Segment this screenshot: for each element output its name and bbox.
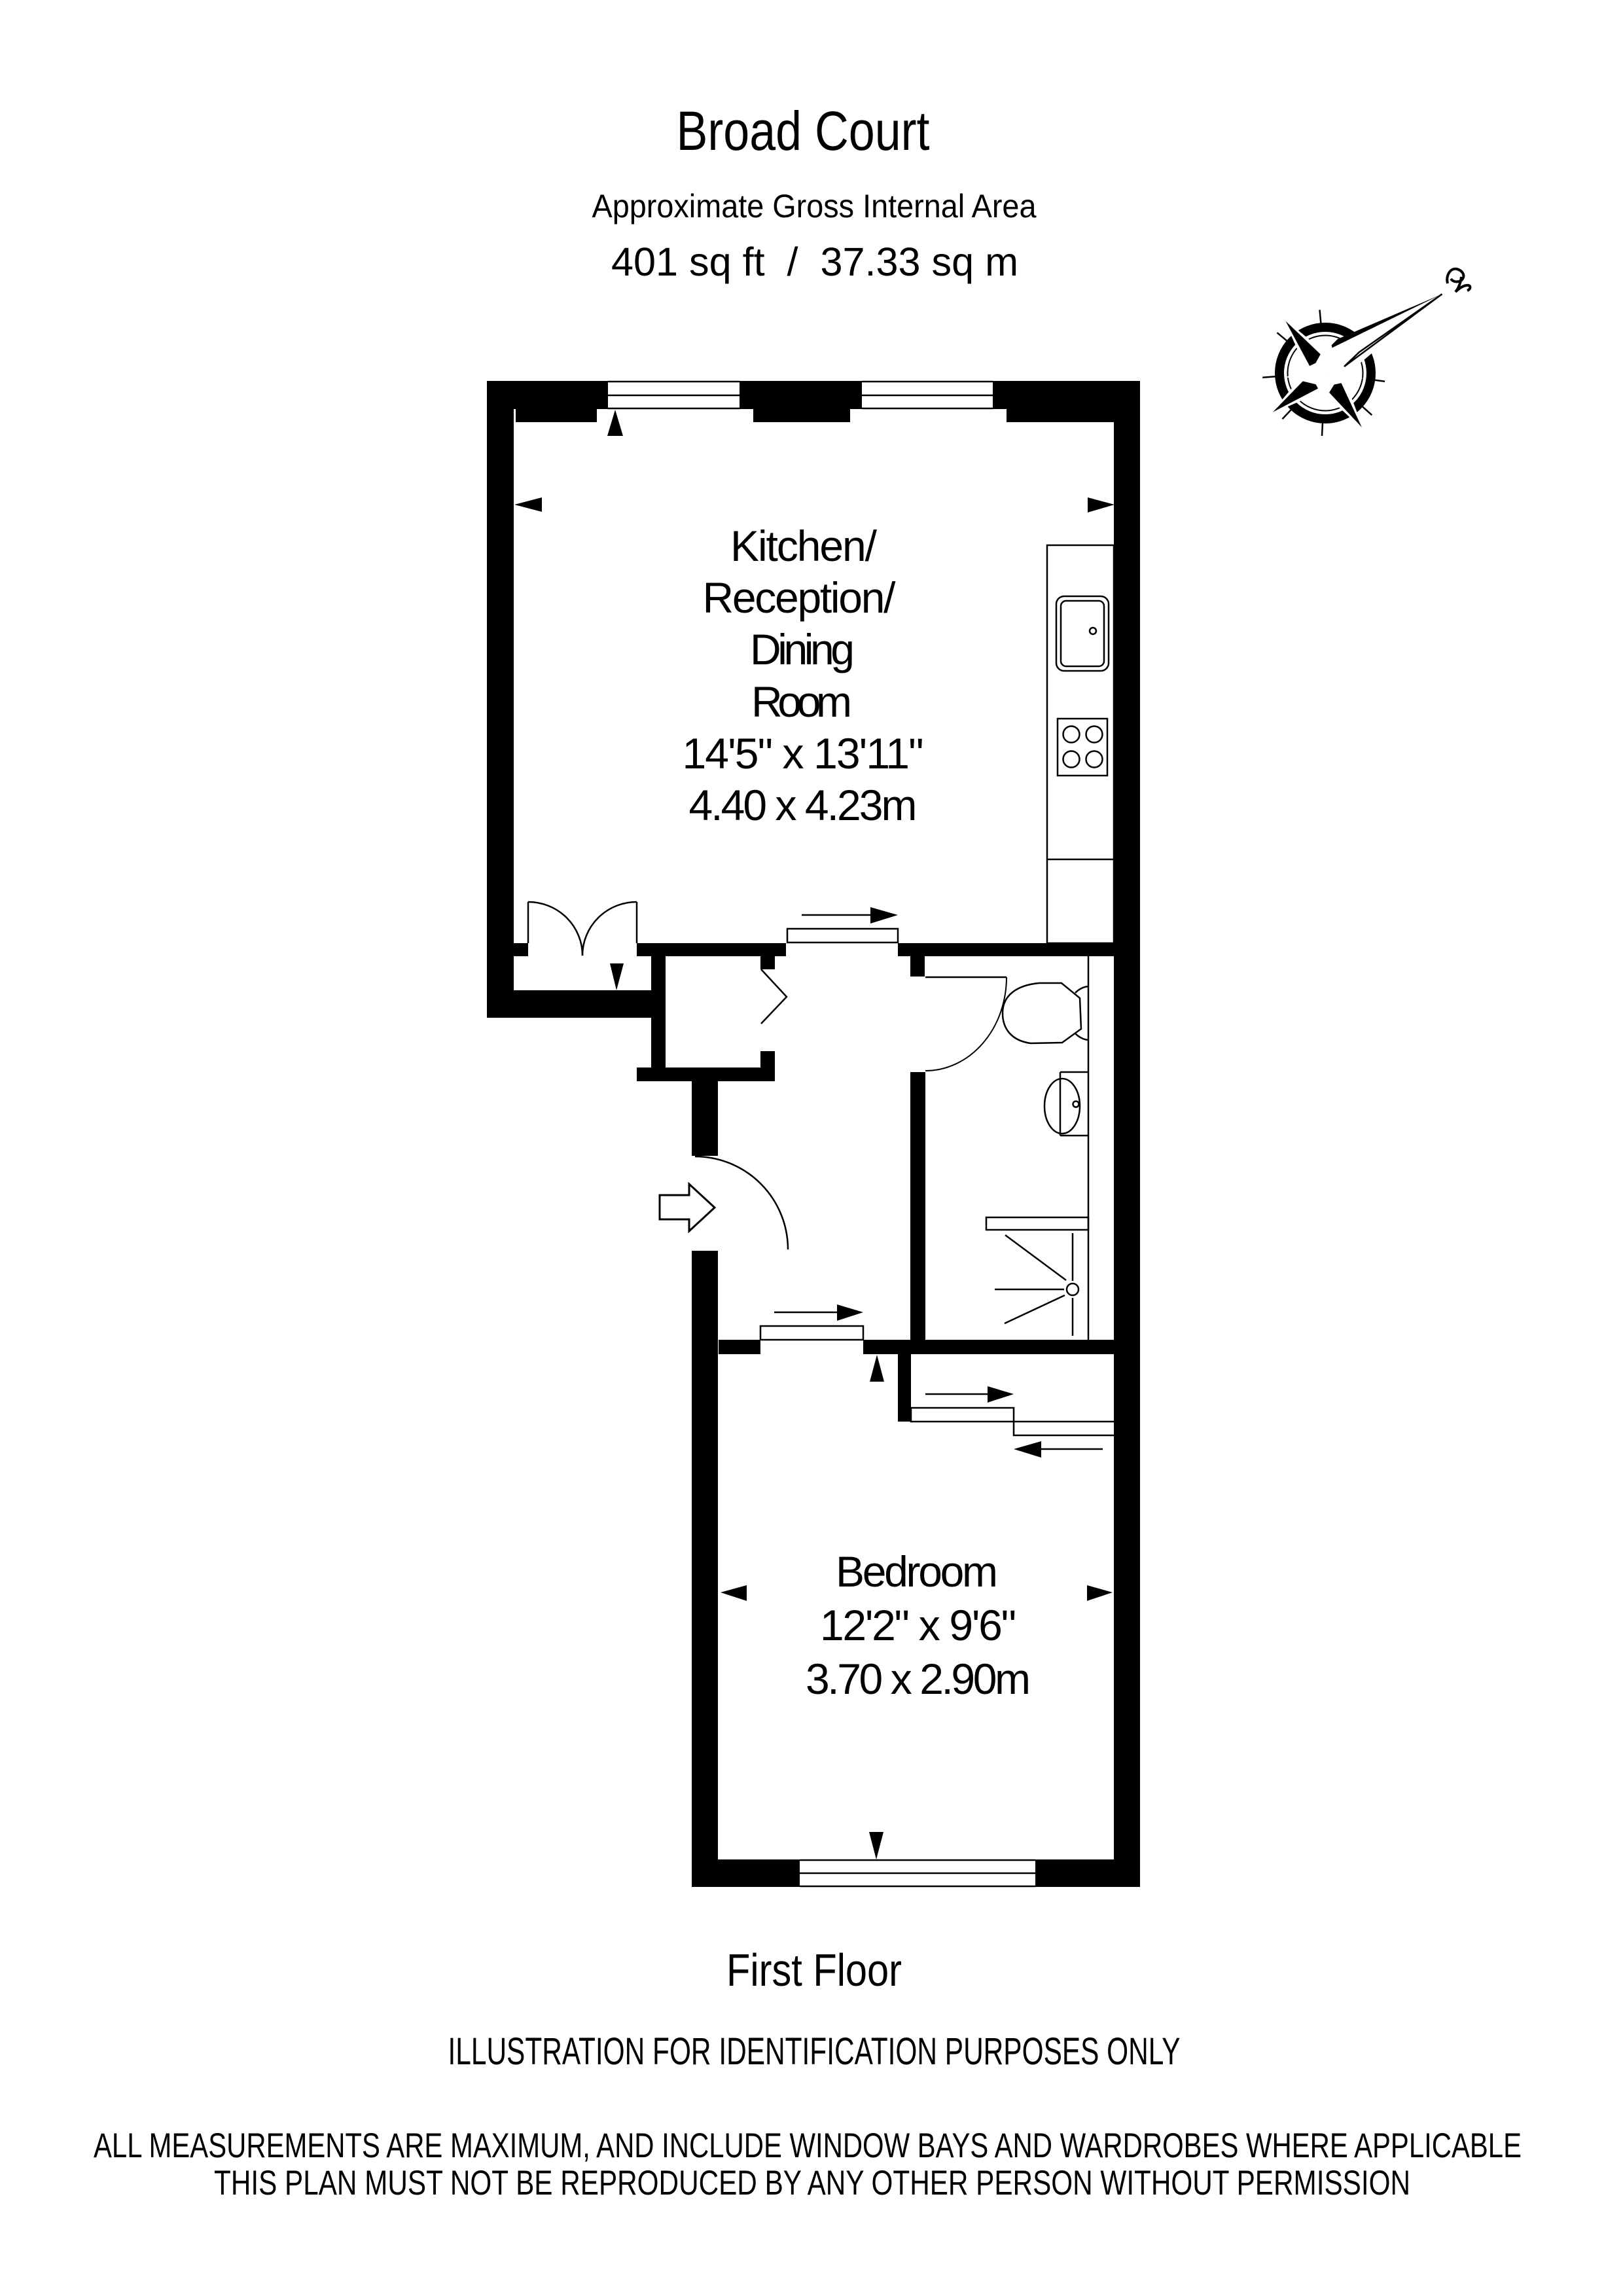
svg-text:Kitchen/: Kitchen/ (730, 522, 878, 570)
svg-text:Approximate Gross Internal Are: Approximate Gross Internal Area (592, 188, 1037, 224)
svg-text:First Floor: First Floor (726, 1945, 902, 1996)
svg-text:4.40 x 4.23m: 4.40 x 4.23m (689, 781, 918, 829)
svg-text:Bedroom: Bedroom (836, 1547, 998, 1596)
svg-text:ILLUSTRATION FOR IDENTIFICATIO: ILLUSTRATION FOR IDENTIFICATION PURPOSES… (448, 2030, 1181, 2073)
svg-text:Broad Court: Broad Court (677, 100, 930, 162)
svg-text:12'2" x 9'6": 12'2" x 9'6" (820, 1601, 1016, 1649)
svg-text:Reception/: Reception/ (703, 573, 897, 622)
svg-text:THIS PLAN MUST NOT BE REPRODUC: THIS PLAN MUST NOT BE REPRODUCED BY ANY … (214, 2164, 1410, 2202)
svg-text:ALL MEASUREMENTS ARE MAXIMUM,: ALL MEASUREMENTS ARE MAXIMUM, AND INCLUD… (94, 2126, 1522, 2165)
svg-text:14'5" x 13'11": 14'5" x 13'11" (683, 729, 924, 778)
svg-text:401 sq ft / 37.33 sq m: 401 sq ft / 37.33 sq m (611, 240, 1018, 284)
svg-text:Room: Room (751, 677, 852, 726)
svg-text:3.70 x 2.90m: 3.70 x 2.90m (806, 1655, 1031, 1703)
svg-text:Dining: Dining (750, 625, 855, 673)
